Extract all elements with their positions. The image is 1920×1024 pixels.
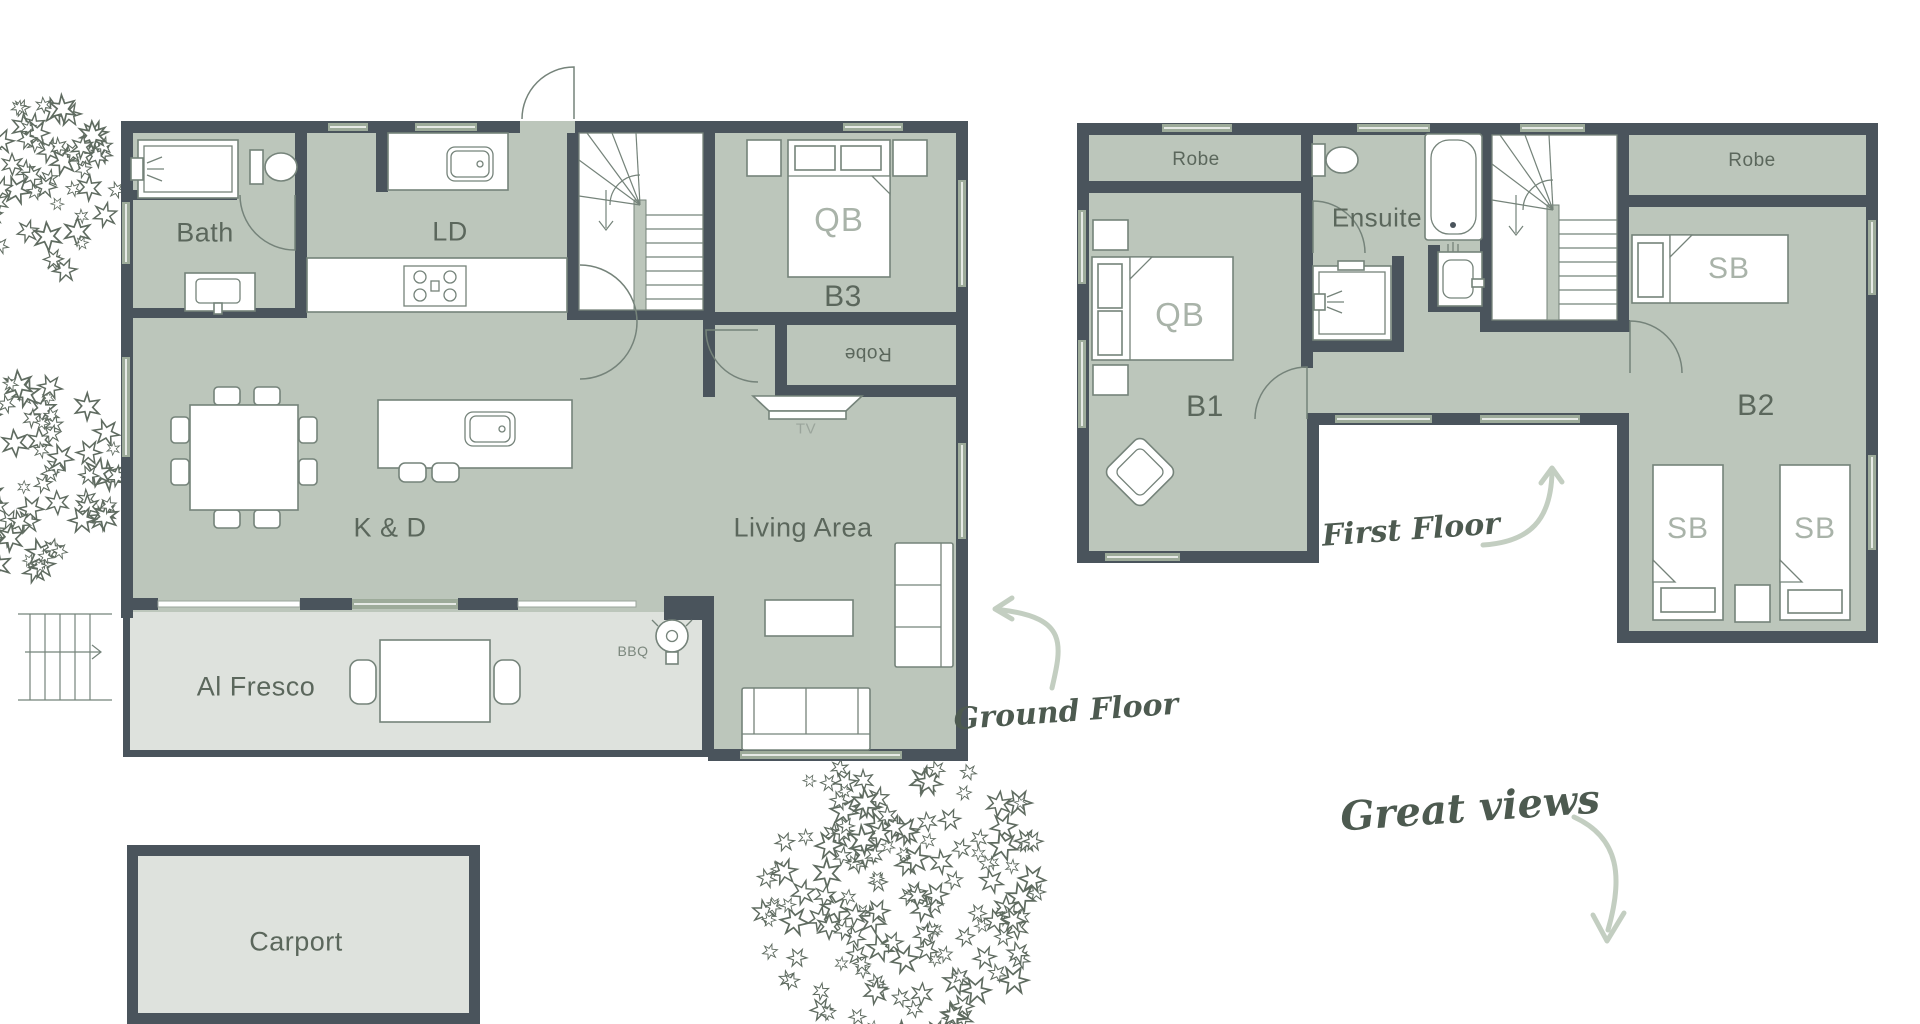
staircase-first bbox=[1492, 135, 1617, 320]
entry-door-arc bbox=[522, 67, 574, 119]
room-label-carport: Carport bbox=[249, 927, 343, 958]
shower bbox=[131, 140, 238, 198]
bed-label-sb-top: SB bbox=[1708, 252, 1750, 286]
hand-arrow-great-views bbox=[1574, 817, 1616, 930]
tree bbox=[0, 370, 130, 587]
room-label-b3: B3 bbox=[824, 280, 862, 314]
room-label-living: Living Area bbox=[733, 513, 872, 544]
first-floor-plan bbox=[1077, 123, 1878, 643]
floorplan-drawing bbox=[0, 0, 1920, 1024]
staircase-ground bbox=[579, 133, 703, 310]
tv-label: TV bbox=[796, 421, 816, 438]
sofa bbox=[742, 688, 870, 750]
room-label-robe-ground: Robe bbox=[844, 342, 891, 364]
dining-table bbox=[171, 387, 317, 528]
bed-label-qb-ground: QB bbox=[814, 201, 864, 239]
room-label-b2: B2 bbox=[1737, 389, 1775, 423]
bed-label-sb-left: SB bbox=[1667, 512, 1709, 546]
ensuite-vanity bbox=[1438, 252, 1484, 306]
bathtub bbox=[1425, 134, 1482, 254]
toilet-first bbox=[1312, 144, 1358, 176]
room-label-bath: Bath bbox=[176, 218, 234, 249]
room-label-robe-b2: Robe bbox=[1728, 150, 1775, 172]
bath-vanity bbox=[185, 273, 255, 314]
bed-label-qb-first: QB bbox=[1155, 296, 1205, 334]
ground-floor-plan bbox=[18, 67, 968, 761]
bedside-table bbox=[1735, 585, 1770, 622]
bbq-label: BBQ bbox=[617, 643, 648, 659]
hand-arrow-ground-floor bbox=[1002, 610, 1058, 688]
exterior-steps bbox=[18, 614, 112, 700]
room-label-ensuite: Ensuite bbox=[1332, 203, 1422, 234]
room-label-kd: K & D bbox=[353, 513, 426, 544]
bed-label-sb-right: SB bbox=[1794, 512, 1836, 546]
toilet bbox=[250, 150, 297, 184]
kitchen-bench bbox=[307, 258, 567, 312]
room-label-laundry: LD bbox=[432, 217, 468, 248]
tv-unit bbox=[753, 396, 862, 419]
room-label-robe-b1: Robe bbox=[1172, 149, 1219, 171]
tree bbox=[749, 758, 1047, 1024]
laundry-bench bbox=[388, 133, 508, 190]
shower-first bbox=[1313, 261, 1391, 340]
room-label-b1: B1 bbox=[1186, 390, 1224, 424]
tree bbox=[0, 91, 126, 285]
coffee-table bbox=[765, 600, 853, 636]
chaise bbox=[895, 543, 953, 667]
room-label-alfresco: Al Fresco bbox=[197, 672, 316, 703]
floorplan-canvas: Bath LD B3 QB Robe TV K & D Living Area … bbox=[0, 0, 1920, 1024]
